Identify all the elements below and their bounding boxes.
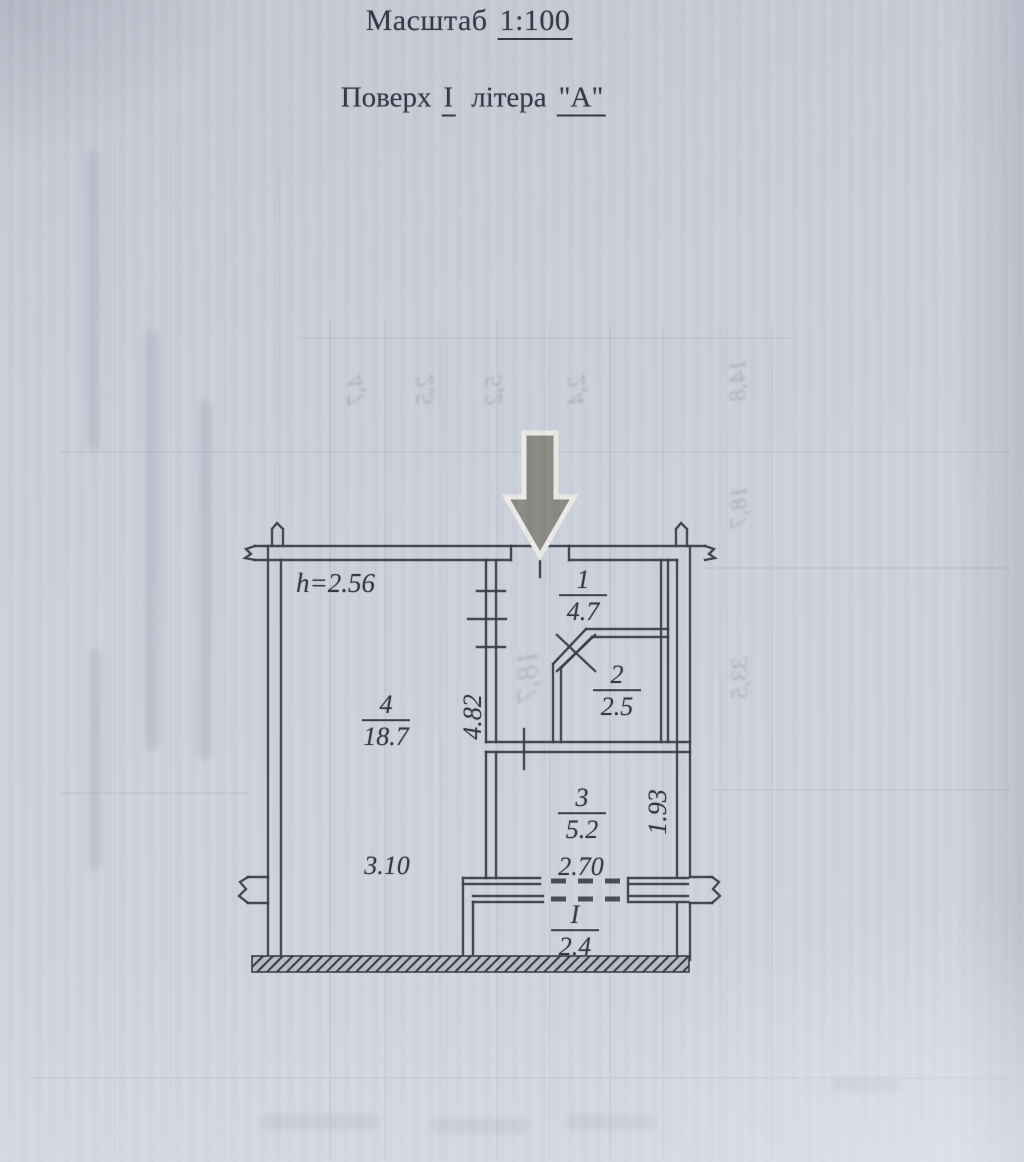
floor-word: Поверх bbox=[341, 82, 432, 114]
room-2-number: 2 bbox=[593, 661, 641, 691]
ceiling-height-label: h=2.56 bbox=[296, 568, 375, 599]
room-2-label: 2 2.5 bbox=[593, 661, 641, 721]
bleedthrough-smudge bbox=[198, 400, 212, 760]
photographed-floor-plan-page: Масштаб1:100 ПоверхІлітера"А" h=2.56 1 4… bbox=[0, 0, 1024, 1162]
wall-break-left-lower bbox=[239, 877, 248, 903]
room-3-area: 5.2 bbox=[558, 815, 606, 844]
bleedthrough-smudge bbox=[89, 650, 101, 870]
bleedthrough-smudge bbox=[430, 1119, 530, 1134]
balcony-label: I 2.4 bbox=[551, 901, 599, 961]
balcony-opening-dashes bbox=[551, 881, 627, 899]
scale-value: 1:100 bbox=[498, 4, 573, 40]
wall-break-right-lower bbox=[712, 877, 720, 903]
letter-word: літера bbox=[471, 82, 546, 114]
scale-label: Масштаб bbox=[366, 4, 488, 37]
bleedthrough-smudge bbox=[86, 150, 100, 450]
room-3-number: 3 bbox=[558, 784, 606, 814]
dimension-room4-height: 4.82 bbox=[458, 694, 488, 740]
bleedthrough-number: 18,7 bbox=[511, 650, 545, 703]
scale-title: Масштаб1:100 bbox=[366, 4, 573, 38]
room-3-label: 3 5.2 bbox=[558, 784, 606, 844]
bleedthrough-number: 2,4 bbox=[565, 375, 592, 405]
room-1-area: 4.7 bbox=[559, 597, 607, 626]
floor-value: І bbox=[442, 82, 456, 117]
room-1-number: 1 bbox=[559, 566, 607, 596]
floor-subtitle: ПоверхІлітера"А" bbox=[341, 82, 606, 115]
room-1-label: 1 4.7 bbox=[559, 566, 607, 626]
letter-value: "А" bbox=[557, 82, 606, 117]
bleedthrough-number: 2,5 bbox=[413, 375, 440, 405]
balcony-number: I bbox=[551, 901, 599, 931]
hatched-railing-wall bbox=[252, 956, 689, 972]
bleedthrough-number: 14,8 bbox=[726, 359, 753, 401]
dimension-room3-width: 2.70 bbox=[558, 852, 604, 882]
dimension-balcony-depth: 1.93 bbox=[643, 789, 673, 835]
bleedthrough-number: 4,7 bbox=[344, 375, 371, 405]
bleedthrough-smudge bbox=[565, 1115, 655, 1130]
room-4-number: 4 bbox=[362, 691, 410, 721]
bleedthrough-number: 5,2 bbox=[482, 375, 509, 405]
dimension-room4-width: 3.10 bbox=[364, 851, 410, 881]
bleedthrough-number: 33,5 bbox=[728, 657, 755, 699]
room-2-area: 2.5 bbox=[593, 692, 641, 721]
room-4-area: 18.7 bbox=[362, 722, 410, 751]
bleedthrough-smudge bbox=[830, 1079, 900, 1092]
wall-break-right bbox=[705, 546, 715, 560]
wall-break-left bbox=[245, 546, 255, 560]
bleedthrough-smudge bbox=[144, 330, 160, 750]
bleedthrough-number: 18,7 bbox=[727, 486, 754, 528]
balcony-area: 2.4 bbox=[551, 932, 599, 961]
bleedthrough-smudge bbox=[260, 1114, 380, 1130]
room-4-label: 4 18.7 bbox=[362, 691, 410, 751]
